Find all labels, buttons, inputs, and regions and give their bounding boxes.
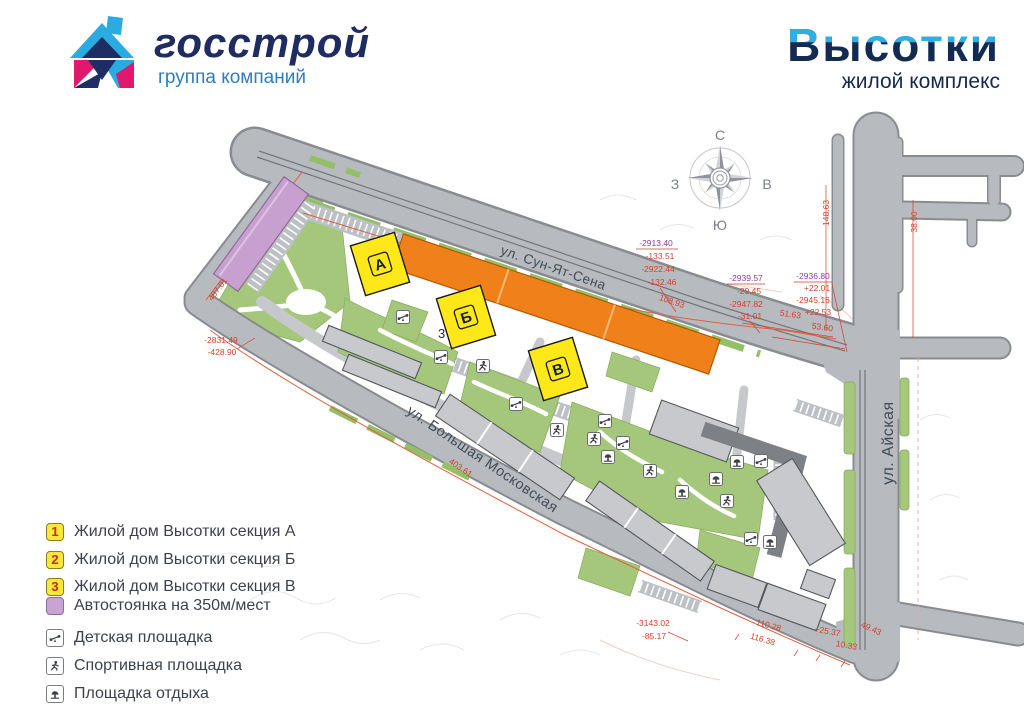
legend-item-playground: Детская площадка <box>46 628 212 647</box>
project-name: Высотки Высотки <box>787 22 1000 68</box>
legend-key-1: 1 <box>46 523 64 541</box>
site-plan-page: { "header": { "brand": {"name": "госстро… <box>0 0 1024 724</box>
measurement-label: 38.00 <box>909 211 919 233</box>
measurement-label: -2913.40 <box>639 238 673 248</box>
compass-rose: С Ю З В <box>671 127 772 233</box>
rest-icon <box>676 486 689 499</box>
playground-icon <box>745 533 758 546</box>
measurement-label: -2922.44 <box>641 264 675 274</box>
compass-north: С <box>715 127 725 143</box>
measurement-label: -133.51 <box>646 251 675 261</box>
measurement-label: -2945.16 <box>796 295 830 305</box>
measurement-label: 148.63 <box>821 200 831 226</box>
sport-icon <box>644 465 657 478</box>
legend-item-parking: Автостоянка на 350м/мест <box>46 596 271 615</box>
playground-icon <box>617 437 630 450</box>
brand-house-icon <box>66 14 142 90</box>
measurement-label: -2947.82 <box>729 299 763 309</box>
sport-icon <box>46 657 64 675</box>
playground-icon <box>599 415 612 428</box>
rest-icon <box>710 473 723 486</box>
project-tagline: жилой комплекс <box>787 70 1000 94</box>
street-label-ayskaya: ул. Айская <box>880 401 897 484</box>
rest-icon <box>46 685 64 703</box>
rest-icon <box>731 456 744 469</box>
compass-south: Ю <box>713 217 727 233</box>
site-number-label: 3 <box>438 326 445 341</box>
legend-key-3: 3 <box>46 578 64 596</box>
measurement-label: -3143.02 <box>636 618 670 628</box>
playground-icon <box>755 455 768 468</box>
measurement-label: -31.01 <box>738 311 762 321</box>
project-logo: Высотки Высотки жилой комплекс <box>787 22 1000 94</box>
sport-icon <box>721 495 734 508</box>
legend-item-sport: Спортивная площадка <box>46 656 242 675</box>
compass-west: З <box>671 176 679 192</box>
legend-item-section-b: 2 Жилой дом Высотки секция Б <box>46 550 295 569</box>
legend-item-section-v: 3 Жилой дом Высотки секция В <box>46 577 296 596</box>
measurement-label: 116.38 <box>749 631 776 648</box>
brand-name: госстрой <box>154 22 370 64</box>
sport-icon <box>477 360 490 373</box>
legend-key-2: 2 <box>46 551 64 569</box>
measurement-label: +22.53 <box>805 307 832 317</box>
measurement-label: -132.46 <box>648 277 677 287</box>
measurement-label: -85.17 <box>642 631 666 641</box>
playground-icon <box>510 398 523 411</box>
legend-item-section-a: 1 Жилой дом Высотки секция А <box>46 522 296 541</box>
brand-logo: госстрой группа компаний <box>66 14 370 90</box>
rest-icon <box>764 536 777 549</box>
playground-icon <box>435 351 448 364</box>
measurement-label: -2831.49 <box>204 335 238 345</box>
measurement-label: -29.45 <box>737 286 761 296</box>
compass-east: В <box>762 176 771 192</box>
playground-icon <box>46 629 64 647</box>
master-plan-map: А Б В 3 <box>0 0 1024 724</box>
brand-tagline: группа компаний <box>158 67 370 89</box>
measurement-label: -2939.57 <box>729 273 763 283</box>
measurement-label: -2936.80 <box>796 271 830 281</box>
sport-icon <box>551 424 564 437</box>
rest-icon <box>602 451 615 464</box>
measurement-label: +22.01 <box>804 283 831 293</box>
parking-swatch <box>46 597 64 615</box>
playground-icon <box>397 311 410 324</box>
measurement-label: -428.90 <box>208 347 237 357</box>
sport-icon <box>588 433 601 446</box>
legend-item-rest: Площадка отдыха <box>46 684 209 703</box>
